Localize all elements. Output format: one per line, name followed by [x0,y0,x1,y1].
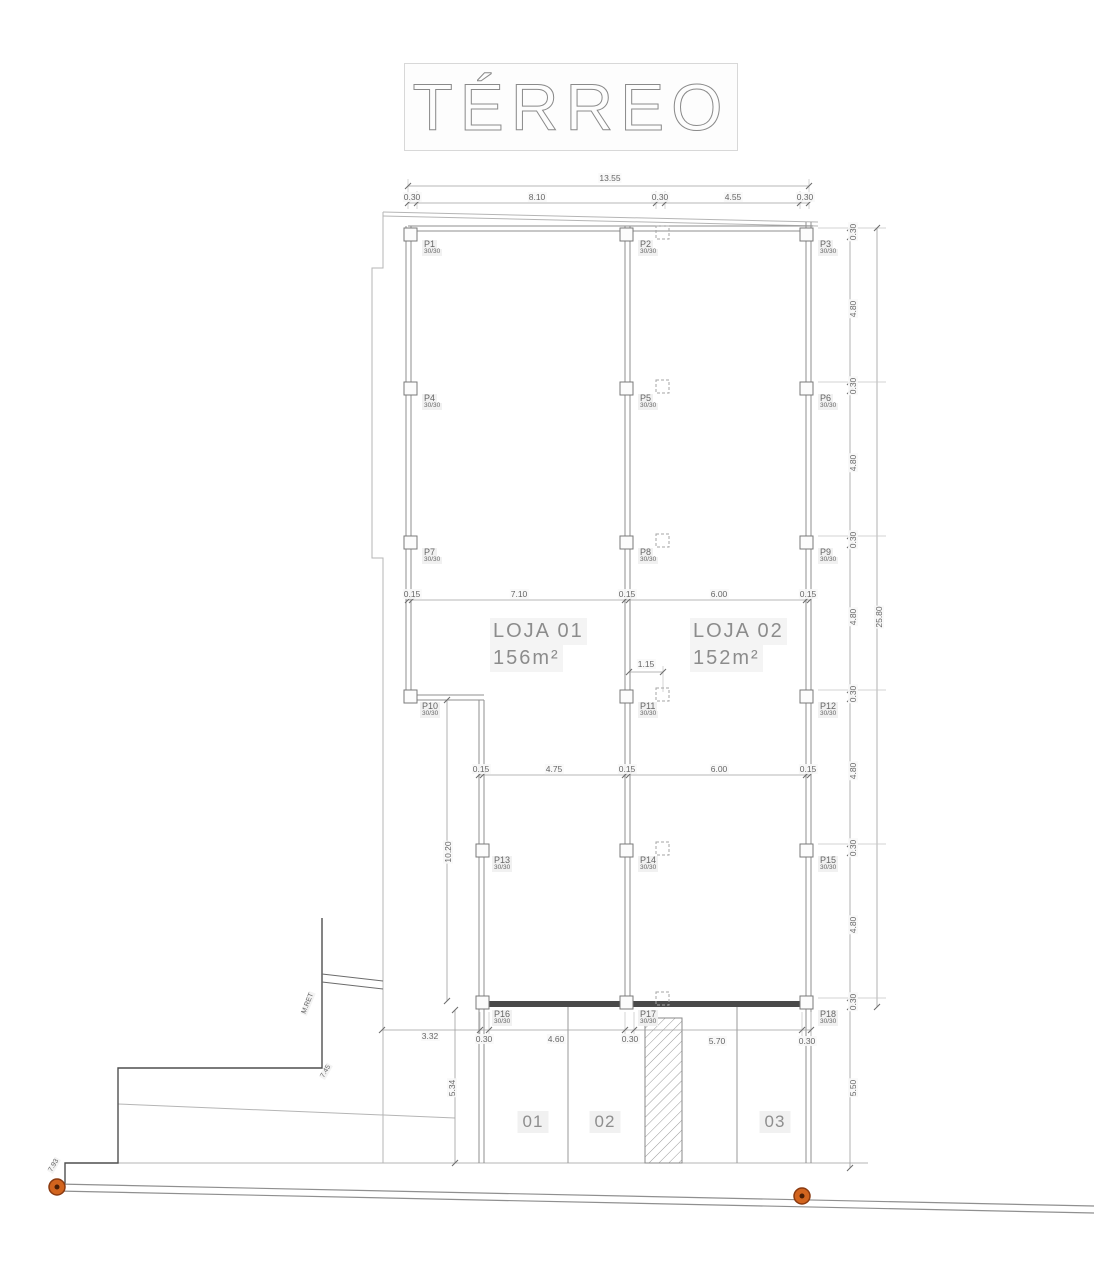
dim-label: 0.30 [651,192,670,202]
column-label-P3: P330/30 [818,240,838,256]
column-label-P5: P530/30 [638,394,658,410]
loja-01-area: 156m² [490,645,563,672]
dim-label: 6.00 [710,764,729,774]
stall-01-label: 01 [518,1111,549,1133]
dim-label: 4.55 [724,192,743,202]
dim-label: 8.10 [528,192,547,202]
terrain-step-lines [65,918,322,1185]
loja-02-area: 152m² [690,645,763,672]
column-label-P16: P1630/30 [492,1010,512,1026]
column-size: 30/30 [638,711,658,718]
dim-label: 5.50 [848,1079,858,1098]
loja-01-name: LOJA 01 [490,618,587,645]
dim-label: 4.80 [848,608,858,627]
column-size: 30/30 [420,711,440,718]
column-size: 30/30 [422,557,442,564]
dim-label: 4.80 [848,916,858,935]
dim-label: 0.15 [472,764,491,774]
dim-label: 3.32 [421,1031,440,1041]
column-label-P1: P130/30 [422,240,442,256]
dim-label: 0.30 [475,1034,494,1044]
column-label-P7: P730/30 [422,548,442,564]
building-walls [406,222,813,1163]
column-size: 30/30 [818,403,838,410]
column-label-P9: P930/30 [818,548,838,564]
loja-02-label: LOJA 02 152m² [690,618,787,672]
column-size: 30/30 [492,1019,512,1026]
dim-label: 13.55 [598,173,621,183]
dim-label: 4.75 [545,764,564,774]
column-label-P17: P1730/30 [638,1010,658,1026]
stall-02-label: 02 [590,1111,621,1133]
dim-label: 0.30 [848,223,858,242]
survey-marker-icon [794,1188,810,1204]
column-size: 30/30 [818,1019,838,1026]
dim-label: 0.30 [403,192,422,202]
column-label-P11: P1130/30 [638,702,658,718]
dim-label: 0.15 [618,764,637,774]
dim-label: 0.15 [618,589,637,599]
column-label-P6: P630/30 [818,394,838,410]
plan-title: TÉRREO [412,69,729,145]
projection-dashed-squares [656,226,669,1005]
floor-plan-canvas: TÉRREO LOJA 01 156m² LOJA 02 152m² 01 02… [0,0,1094,1280]
ground-beam [479,1001,813,1007]
column-size: 30/30 [818,557,838,564]
dim-label: 0.30 [848,377,858,396]
column-size: 30/30 [638,403,658,410]
dim-label: 0.30 [796,192,815,202]
dim-label: 0.15 [799,589,818,599]
column-size: 30/30 [422,249,442,256]
column-size: 30/30 [818,711,838,718]
extension-lines [408,179,886,1036]
column-size: 30/30 [638,249,658,256]
dim-label: 5.34 [447,1079,457,1098]
column-label-P2: P230/30 [638,240,658,256]
column-size: 30/30 [638,1019,658,1026]
column-size: 30/30 [422,403,442,410]
lot-boundary-lines [65,212,868,1163]
stall-03-label: 03 [760,1111,791,1133]
dim-label: 4.60 [547,1034,566,1044]
column-label-P14: P1430/30 [638,856,658,872]
column-label-P8: P830/30 [638,548,658,564]
column-label-P10: P1030/30 [420,702,440,718]
column-label-P12: P1230/30 [818,702,838,718]
column-size: 30/30 [638,557,658,564]
dim-label: 0.15 [403,589,422,599]
column-label-P4: P430/30 [422,394,442,410]
hatched-wall [645,1018,682,1163]
loja-01-label: LOJA 01 156m² [490,618,587,672]
dim-label: 5.70 [708,1036,727,1046]
column-size: 30/30 [638,865,658,872]
loja-02-name: LOJA 02 [690,618,787,645]
dim-label: 0.30 [848,531,858,550]
dim-label: 7.10 [510,589,529,599]
dim-label: 0.15 [799,764,818,774]
column-size: 30/30 [818,249,838,256]
column-label-P18: P1830/30 [818,1010,838,1026]
dim-label: 1.15 [637,659,656,669]
ramp-lines [322,974,383,989]
dim-label: 4.80 [848,762,858,781]
dim-label: 0.30 [798,1036,817,1046]
dim-label: 4.80 [848,300,858,319]
column-label-P13: P1330/30 [492,856,512,872]
dim-label: 0.30 [848,685,858,704]
dim-label: 0.30 [848,993,858,1012]
plan-title-box: TÉRREO [404,63,738,151]
column-size: 30/30 [492,865,512,872]
dim-label: 6.00 [710,589,729,599]
survey-marker-icon [49,1179,65,1195]
dim-label: 25.80 [874,605,884,628]
dim-label: 4.80 [848,454,858,473]
column-label-P15: P1530/30 [818,856,838,872]
dim-label: 0.30 [621,1034,640,1044]
dim-label: 10.20 [443,840,453,863]
street-curb-lines [57,1184,1094,1213]
dim-label: 0.30 [848,839,858,858]
column-size: 30/30 [818,865,838,872]
